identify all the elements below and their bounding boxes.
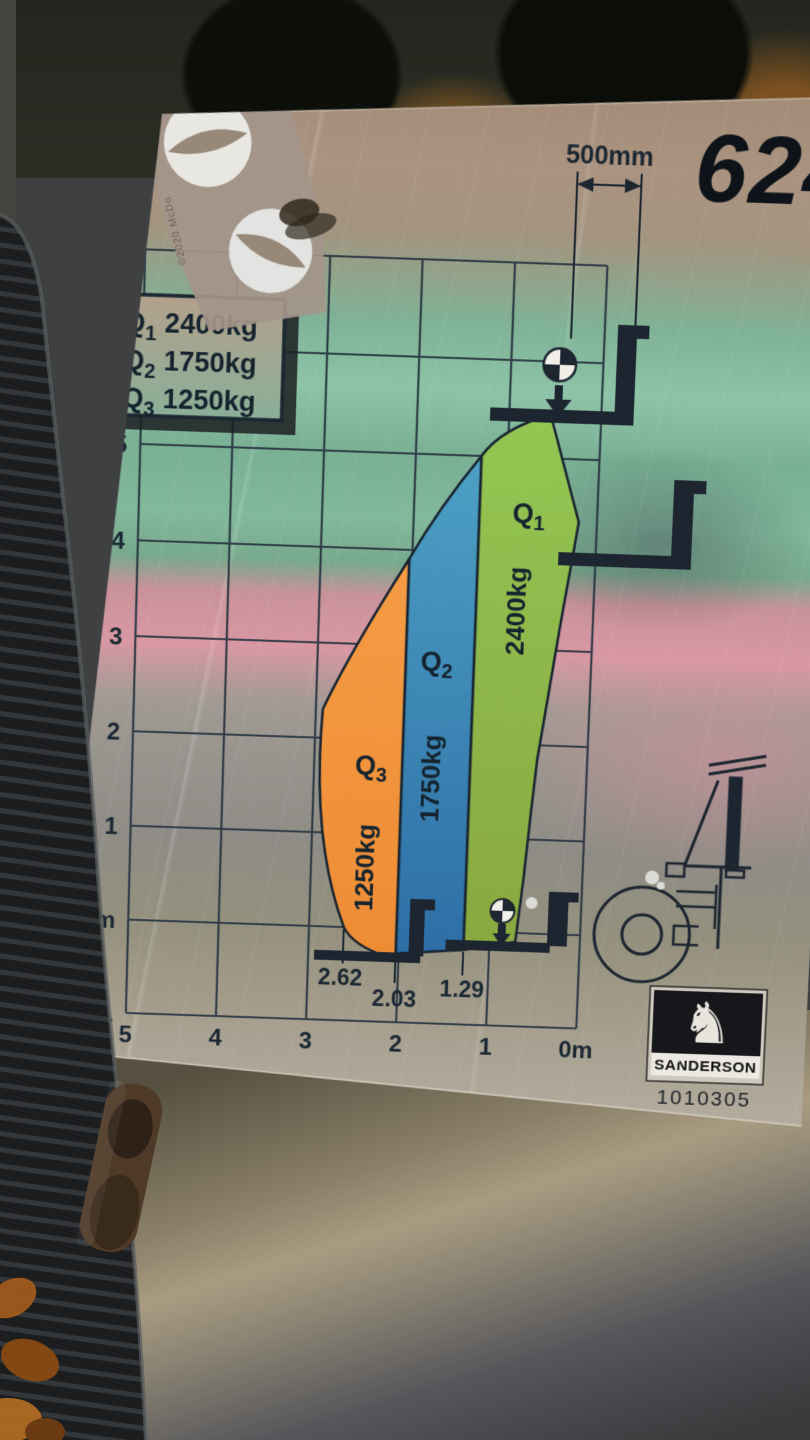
hydraulic-hose <box>0 215 146 1440</box>
foreground-objects <box>0 0 810 1440</box>
photo-of-load-chart-placard: { "plate": { "model_number": "624", "loa… <box>0 0 810 1440</box>
frame-edge <box>0 0 16 250</box>
